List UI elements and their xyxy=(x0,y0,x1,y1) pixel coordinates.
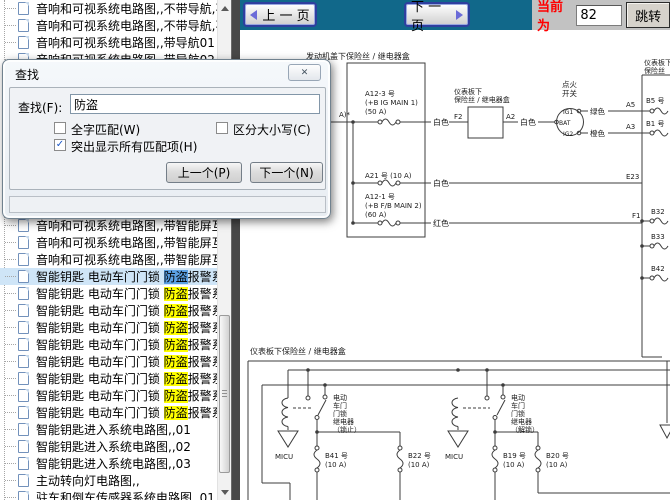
relay-unlock-line5: （解锁） xyxy=(511,425,539,434)
lower-box-title: 仪表板下保险丝 / 继电器盒 xyxy=(250,346,346,356)
terminal-bat: BAT xyxy=(559,120,571,127)
list-item-label: 智能钥匙 电动车门门锁 防盗报警系统电路图 xyxy=(34,336,217,353)
wire-color-white-3: 白色 xyxy=(433,178,449,188)
list-item[interactable]: 音响和可视系统电路图,,不带导航,不 xyxy=(0,17,217,34)
list-item-label: 音响和可视系统电路图,,带智能屏互 xyxy=(34,234,217,251)
document-icon xyxy=(18,406,29,419)
arrow-right-icon xyxy=(456,10,463,20)
list-item[interactable]: 智能钥匙 电动车门门锁 防盗报警系统电路图 xyxy=(0,319,217,336)
fuse-a12-3-line3: (50 A) xyxy=(365,108,387,116)
highlight-all-label: 突出显示所有匹配项(H) xyxy=(71,138,197,155)
tree-connector xyxy=(5,429,16,430)
tree-connector xyxy=(5,378,16,379)
relay-lock-line5: （锁止） xyxy=(333,425,361,434)
list-item-label: 智能钥匙 电动车门门锁 防盗报警系统电路图 xyxy=(34,404,217,421)
fuse-a12-1-line2: (+B F/B MAIN 2) xyxy=(365,202,422,210)
fuse-b19-line2: (10 A) xyxy=(503,461,525,469)
document-icon xyxy=(18,219,29,232)
list-item-label: 音响和可视系统电路图,,不带导航,不 xyxy=(34,17,217,34)
match-case-checkbox[interactable] xyxy=(216,122,228,134)
document-icon xyxy=(18,2,29,15)
search-match-highlight: 防盗 xyxy=(164,321,188,335)
tree-connector xyxy=(5,225,16,226)
dash-box-title-line2: 保险丝 / 继电器盒 xyxy=(454,95,510,104)
list-item[interactable]: 音响和可视系统电路图,,带智能屏互 xyxy=(0,234,217,251)
document-icon xyxy=(18,440,29,453)
list-item-label: 智能钥匙 电动车门门锁 防盗报警系统电路图 xyxy=(34,268,217,285)
arrow-up-icon xyxy=(221,6,229,11)
document-icon xyxy=(18,423,29,436)
search-match-highlight: 防盗 xyxy=(164,355,188,369)
document-icon xyxy=(18,338,29,351)
dialog-content-panel: 查找(F): 全字匹配(W) 区分大小写(C) 突出显示所有匹配项(H) 上一个… xyxy=(9,87,326,190)
fuse-b20-line1: B20 号 xyxy=(546,452,569,460)
previous-page-button[interactable]: 上 一 页 xyxy=(243,2,317,27)
search-match-highlight: 防盗 xyxy=(164,338,188,352)
jump-button[interactable]: 跳转 xyxy=(626,2,670,28)
fuse-a12-1-line3: (60 A) xyxy=(365,211,387,219)
right-box-title-line1: 仪表板下 xyxy=(644,58,670,67)
fuse-a12-3-line1: A12-3 号 xyxy=(365,90,395,98)
document-icon xyxy=(18,321,29,334)
whole-word-label: 全字匹配(W) xyxy=(71,121,140,138)
fuse-b33: B33 xyxy=(651,233,665,241)
next-match-button[interactable]: 下一个(N) xyxy=(250,162,323,183)
list-item[interactable]: 智能钥匙进入系统电路图,,02 xyxy=(0,438,217,455)
tree-connector xyxy=(5,361,16,362)
list-item[interactable]: 智能钥匙 电动车门门锁 防盗报警系统电路图 xyxy=(0,268,217,285)
document-icon xyxy=(18,372,29,385)
tree-connector xyxy=(5,446,16,447)
relay-lock-line4: 继电器 xyxy=(333,417,354,426)
next-page-label: 下 一 页 xyxy=(411,0,451,34)
fuse-a12-3-line2: (+B IG MAIN 1) xyxy=(365,99,418,107)
list-item[interactable]: 智能钥匙 电动车门门锁 防盗报警系统电路图 xyxy=(0,387,217,404)
fuse-b32: B32 xyxy=(651,208,665,216)
tree-connector xyxy=(5,310,16,311)
list-item-label: 音响和可视系统电路图,,不带导航,不 xyxy=(34,0,217,17)
close-icon: ✕ xyxy=(301,68,309,78)
tree-connector xyxy=(5,497,16,498)
pin-a5: A5 xyxy=(626,101,635,109)
arrow-left-icon xyxy=(250,10,257,20)
junction-dots xyxy=(306,120,644,434)
label-fragment: A)* xyxy=(339,111,351,119)
tree-connector xyxy=(5,412,16,413)
fuse-b20-line2: (10 A) xyxy=(546,461,568,469)
list-item-label: 智能钥匙 电动车门门锁 防盗报警系统电路图 xyxy=(34,302,217,319)
list-item[interactable]: 智能钥匙 电动车门门锁 防盗报警系统电路图 xyxy=(0,353,217,370)
list-item-label: 智能钥匙 电动车门门锁 防盗报警系统电路图 xyxy=(34,370,217,387)
scroll-up-button[interactable] xyxy=(218,0,232,16)
fuse-b5: B5 号 xyxy=(646,97,664,105)
wire-color-white-1: 白色 xyxy=(433,117,449,127)
wire-color-orange: 橙色 xyxy=(590,128,605,138)
list-item-label: 智能钥匙进入系统电路图,,02 xyxy=(34,438,193,455)
terminal-ig1: IG1 xyxy=(563,109,573,116)
list-item-label: 智能钥匙 电动车门门锁 防盗报警系统电路图 xyxy=(34,387,217,404)
document-icon xyxy=(18,270,29,283)
list-item-label: 音响和可视系统电路图,,带导航01 xyxy=(34,34,217,51)
relay-unlock-line1: 电动 xyxy=(511,393,525,402)
tree-connector xyxy=(5,42,16,43)
pin-f1: F1 xyxy=(632,212,640,220)
whole-word-checkbox[interactable] xyxy=(54,122,66,134)
list-item-label: 智能钥匙进入系统电路图,,01 xyxy=(34,421,193,438)
tree-connector xyxy=(5,344,16,345)
find-field-label: 查找(F): xyxy=(18,99,62,116)
tree-connector xyxy=(5,259,16,260)
relay-unlock-line3: 门锁 xyxy=(511,409,525,418)
fuse-b19-line1: B19 号 xyxy=(503,452,526,460)
list-item[interactable]: 音响和可视系统电路图,,带智能屏互 xyxy=(0,217,217,234)
wire-color-green: 绿色 xyxy=(590,106,605,116)
relay-unlock-line2: 车门 xyxy=(511,401,525,410)
list-item[interactable]: 智能钥匙 电动车门门锁 防盗报警系统电路图 xyxy=(0,370,217,387)
list-item[interactable]: 智能钥匙 电动车门门锁 防盗报警系统电路图 xyxy=(0,302,217,319)
list-item[interactable]: 主动转向灯电路图,, xyxy=(0,472,217,489)
document-icon xyxy=(18,36,29,49)
wire-color-red: 红色 xyxy=(433,218,449,228)
fuse-b41-line1: B41 号 xyxy=(325,452,348,460)
list-item[interactable]: 智能钥匙 电动车门门锁 防盗报警系统电路图 xyxy=(0,285,217,302)
fuse-b22-line2: (10 A) xyxy=(408,461,430,469)
scroll-down-button[interactable] xyxy=(218,484,232,500)
tree-connector xyxy=(5,276,16,277)
document-icon xyxy=(18,19,29,32)
next-page-button[interactable]: 下 一 页 xyxy=(404,2,470,27)
fuse-b41-line2: (10 A) xyxy=(325,461,347,469)
navigation-bar: 上 一 页 下 一 页 当前为 跳转 xyxy=(240,0,670,30)
document-icon xyxy=(18,355,29,368)
scrollbar-thumb[interactable] xyxy=(219,315,230,473)
ignition-label-line1: 点火 xyxy=(562,80,577,89)
document-icon xyxy=(18,253,29,266)
tree-connector xyxy=(5,8,16,9)
list-item-label: 智能钥匙 电动车门门锁 防盗报警系统电路图 xyxy=(34,285,217,302)
terminal-ig2: IG2 xyxy=(563,131,573,138)
search-match-highlight: 防盗 xyxy=(164,372,188,386)
current-page-label: 当前为 xyxy=(537,0,572,34)
dash-box-title-line1: 仪表板下 xyxy=(454,87,482,96)
dialog-status-area xyxy=(9,196,326,213)
document-icon xyxy=(18,236,29,249)
document-icon xyxy=(18,304,29,317)
pin-a3: A3 xyxy=(626,123,635,131)
relay-unlock-line4: 继电器 xyxy=(511,417,532,426)
current-page-input[interactable] xyxy=(576,5,622,26)
search-match-highlight: 防盗 xyxy=(164,287,188,301)
tree-connector xyxy=(5,327,16,328)
list-item-label: 智能钥匙 电动车门门锁 防盗报警系统电路图 xyxy=(34,319,217,336)
fuse-b1: B1 号 xyxy=(646,120,664,128)
find-dialog: 查找 ✕ 查找(F): 全字匹配(W) 区分大小写(C) 突出显示所有匹配项(H… xyxy=(2,59,331,219)
document-icon xyxy=(18,287,29,300)
relay-lock-line1: 电动 xyxy=(333,393,347,402)
pin-f2: F2 xyxy=(454,113,462,121)
list-item-label: 驻车和倒车传感器系统电路图,,01 xyxy=(34,489,217,500)
ignition-label-line2: 开关 xyxy=(562,88,577,98)
match-case-label: 区分大小写(C) xyxy=(233,121,311,138)
list-item-label: 音响和可视系统电路图,,带智能屏互 xyxy=(34,251,217,268)
micu-left-label: MICU xyxy=(275,453,293,461)
tree-connector xyxy=(5,480,16,481)
search-match-highlight: 防盗 xyxy=(164,406,188,420)
close-button[interactable]: ✕ xyxy=(288,64,321,81)
document-icon xyxy=(18,457,29,470)
list-item-label: 智能钥匙进入系统电路图,,03 xyxy=(34,455,193,472)
fuse-b42: B42 xyxy=(651,265,665,273)
arrow-down-icon xyxy=(221,490,229,495)
right-box-title-line2: 保险丝 xyxy=(644,66,665,75)
list-item[interactable]: 智能钥匙进入系统电路图,,01 xyxy=(0,421,217,438)
list-item[interactable]: 音响和可视系统电路图,,不带导航,不 xyxy=(0,0,217,17)
list-item-label: 主动转向灯电路图,, xyxy=(34,472,142,489)
list-item[interactable]: 智能钥匙 电动车门门锁 防盗报警系统电路图 xyxy=(0,404,217,421)
tree-connector xyxy=(5,463,16,464)
list-item-label: 智能钥匙 电动车门门锁 防盗报警系统电路图 xyxy=(34,353,217,370)
tree-connector xyxy=(5,395,16,396)
search-match-highlight: 防盗 xyxy=(164,304,188,318)
document-icon xyxy=(18,389,29,402)
relay-lock-line2: 车门 xyxy=(333,401,347,410)
page-jump-panel: 当前为 跳转 xyxy=(532,0,670,30)
find-input[interactable] xyxy=(70,94,320,114)
list-item[interactable]: 驻车和倒车传感器系统电路图,,01 xyxy=(0,489,217,500)
wire-color-white-2: 白色 xyxy=(520,117,536,127)
list-item[interactable]: 音响和可视系统电路图,,带智能屏互 xyxy=(0,251,217,268)
pin-e23: E23 xyxy=(626,173,639,181)
list-item-label: 音响和可视系统电路图,,带智能屏互 xyxy=(34,217,217,234)
tree-connector xyxy=(5,293,16,294)
previous-page-label: 上 一 页 xyxy=(262,5,309,24)
pin-a2: A2 xyxy=(506,113,515,121)
fuse-a12-1-line1: A12-1 号 xyxy=(365,193,395,201)
document-icon xyxy=(18,491,29,500)
tree-connector xyxy=(5,25,16,26)
highlight-all-checkbox[interactable] xyxy=(54,139,66,151)
previous-match-button[interactable]: 上一个(P) xyxy=(166,162,242,183)
micu-right-label: MICU xyxy=(445,453,463,461)
search-match-highlight: 防盗 xyxy=(164,389,188,403)
document-icon xyxy=(18,474,29,487)
dialog-title: 查找 xyxy=(15,66,39,83)
list-item[interactable]: 智能钥匙 电动车门门锁 防盗报警系统电路图 xyxy=(0,336,217,353)
fuse-a21: A21 号 (10 A) xyxy=(365,172,412,180)
search-match-highlight: 防盗 xyxy=(164,270,188,284)
list-item[interactable]: 音响和可视系统电路图,,带导航01 xyxy=(0,34,217,51)
relay-lock-line3: 门锁 xyxy=(333,409,347,418)
fuse-b22-line1: B22 号 xyxy=(408,452,431,460)
tree-connector xyxy=(5,242,16,243)
list-item[interactable]: 智能钥匙进入系统电路图,,03 xyxy=(0,455,217,472)
